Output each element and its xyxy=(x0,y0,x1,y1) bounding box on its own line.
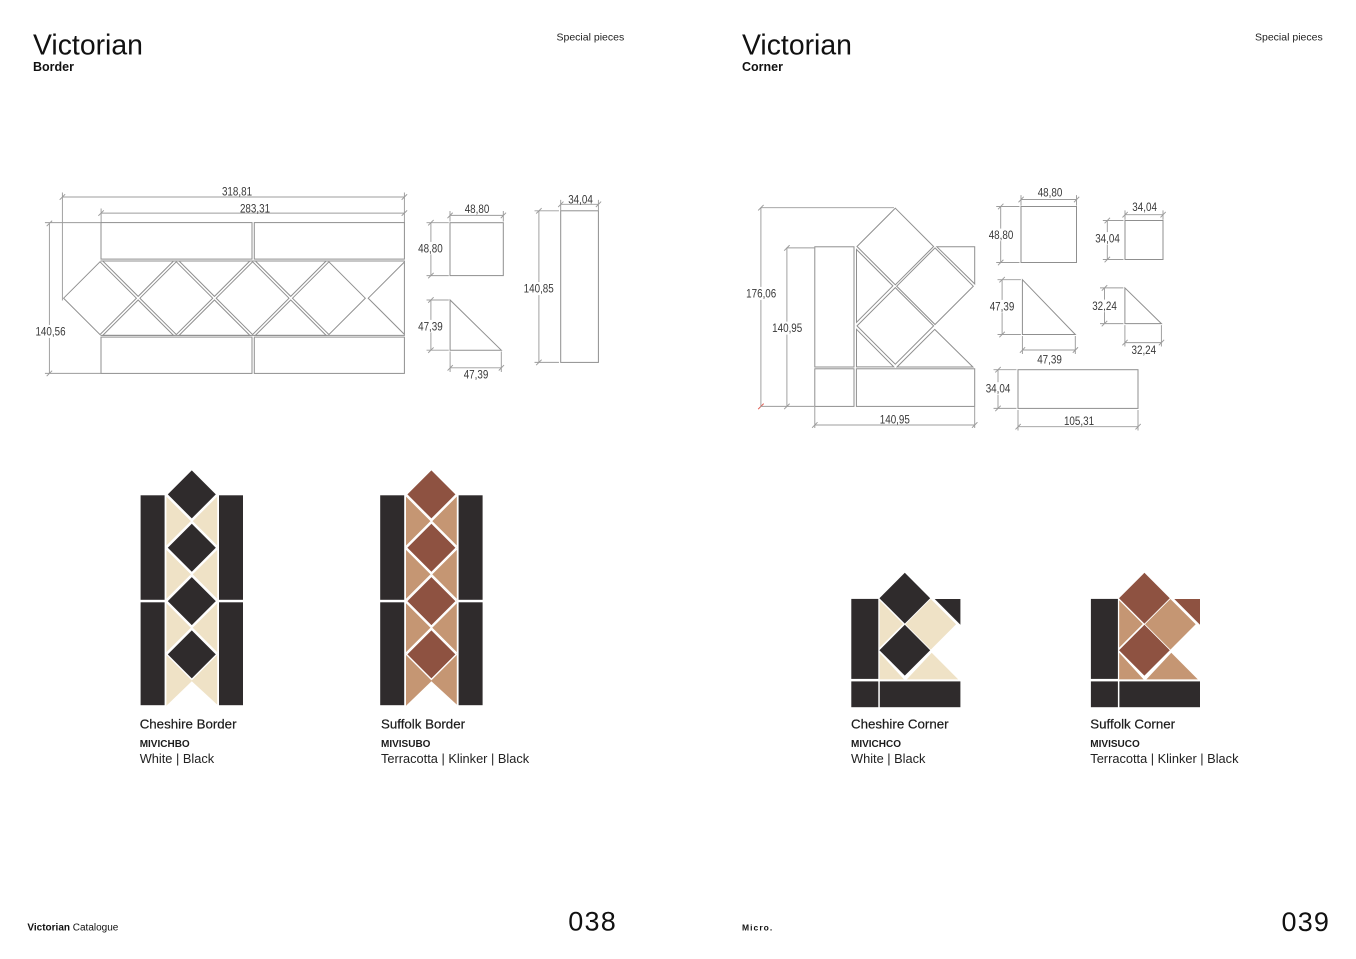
svg-text:105,31: 105,31 xyxy=(1064,415,1094,428)
svg-text:Suffolk Border: Suffolk Border xyxy=(381,717,466,732)
svg-text:MIVICHCO: MIVICHCO xyxy=(851,739,901,750)
svg-text:Special pieces: Special pieces xyxy=(1255,32,1323,44)
svg-text:Victorian: Victorian xyxy=(742,30,852,62)
svg-text:32,24: 32,24 xyxy=(1131,344,1156,357)
svg-text:34,04: 34,04 xyxy=(568,194,593,207)
svg-text:Cheshire Corner: Cheshire Corner xyxy=(851,717,949,732)
svg-text:Special pieces: Special pieces xyxy=(557,32,625,44)
svg-text:MIVISUBO: MIVISUBO xyxy=(381,739,431,750)
svg-text:Micro.: Micro. xyxy=(742,922,773,932)
svg-text:Terracotta | Klinker | Black: Terracotta | Klinker | Black xyxy=(1090,751,1239,766)
svg-text:White | Black: White | Black xyxy=(851,751,926,766)
svg-text:47,39: 47,39 xyxy=(990,301,1015,314)
svg-text:039: 039 xyxy=(1282,907,1331,937)
svg-text:Victorian: Victorian xyxy=(33,30,143,62)
svg-text:47,39: 47,39 xyxy=(418,321,443,334)
svg-text:34,04: 34,04 xyxy=(1095,233,1120,246)
svg-text:140,85: 140,85 xyxy=(524,283,554,296)
svg-text:47,39: 47,39 xyxy=(464,369,489,382)
svg-text:MIVISUCO: MIVISUCO xyxy=(1090,739,1140,750)
svg-text:White | Black: White | Black xyxy=(140,751,215,766)
svg-text:140,95: 140,95 xyxy=(772,322,802,335)
svg-text:34,04: 34,04 xyxy=(1132,201,1157,214)
svg-text:038: 038 xyxy=(568,907,617,937)
svg-text:176,06: 176,06 xyxy=(746,288,776,301)
svg-text:47,39: 47,39 xyxy=(1037,354,1062,367)
svg-text:Corner: Corner xyxy=(742,60,783,74)
svg-text:140,95: 140,95 xyxy=(880,414,910,427)
svg-text:Cheshire Border: Cheshire Border xyxy=(140,717,237,732)
svg-text:32,24: 32,24 xyxy=(1092,300,1117,313)
svg-text:48,80: 48,80 xyxy=(465,203,490,216)
svg-text:48,80: 48,80 xyxy=(1038,187,1063,200)
svg-text:318,81: 318,81 xyxy=(222,186,252,199)
svg-text:MIVICHBO: MIVICHBO xyxy=(140,739,190,750)
svg-text:140,56: 140,56 xyxy=(35,326,65,339)
svg-text:Terracotta | Klinker | Black: Terracotta | Klinker | Black xyxy=(381,751,530,766)
svg-text:Border: Border xyxy=(33,60,74,74)
svg-text:34,04: 34,04 xyxy=(986,383,1011,396)
svg-text:283,31: 283,31 xyxy=(240,203,270,216)
svg-text:Suffolk Corner: Suffolk Corner xyxy=(1090,717,1175,732)
svg-text:Victorian Catalogue: Victorian Catalogue xyxy=(27,922,118,933)
svg-text:48,80: 48,80 xyxy=(418,243,443,256)
svg-text:48,80: 48,80 xyxy=(989,229,1014,242)
